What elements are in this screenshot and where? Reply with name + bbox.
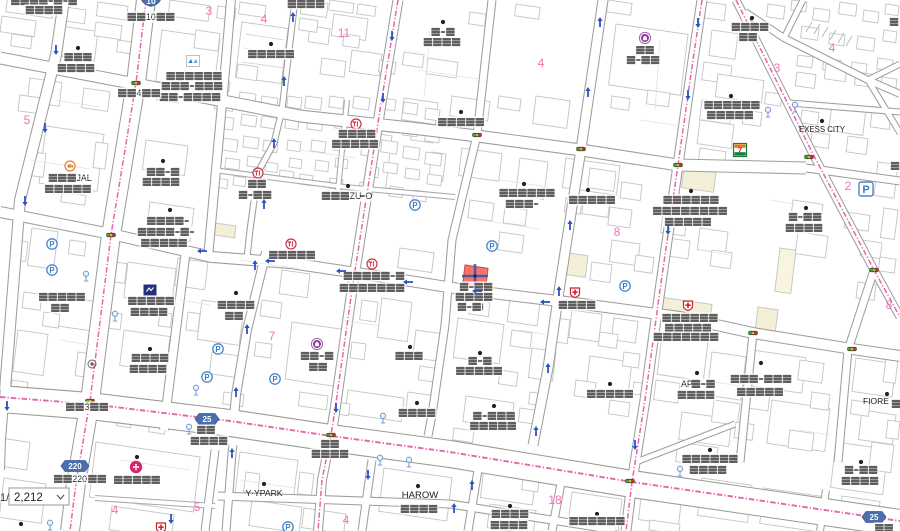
svg-text:P: P xyxy=(215,345,220,354)
svg-text:P: P xyxy=(272,375,277,384)
svg-text:FIORE: FIORE xyxy=(863,396,889,406)
svg-text:3: 3 xyxy=(206,4,213,18)
svg-text:10: 10 xyxy=(146,0,156,6)
svg-text:7: 7 xyxy=(738,146,742,155)
svg-text:P: P xyxy=(49,266,54,275)
svg-text:5: 5 xyxy=(24,113,31,127)
svg-text:HAROW: HAROW xyxy=(402,490,438,501)
svg-text:P: P xyxy=(204,373,209,382)
svg-text:25: 25 xyxy=(870,513,879,522)
svg-text:4: 4 xyxy=(829,41,836,55)
svg-text:Y·YPARK: Y·YPARK xyxy=(245,488,282,498)
svg-text:2,212: 2,212 xyxy=(14,492,43,504)
svg-text:25: 25 xyxy=(203,415,212,424)
svg-text:EXESS CITY: EXESS CITY xyxy=(799,125,846,134)
svg-text:P: P xyxy=(862,184,869,196)
svg-text:P: P xyxy=(622,282,627,291)
svg-text:P: P xyxy=(49,240,54,249)
svg-text:8: 8 xyxy=(614,225,621,239)
svg-text:AP: AP xyxy=(681,379,693,389)
svg-text:4: 4 xyxy=(538,56,545,70)
svg-text:4: 4 xyxy=(112,503,119,517)
svg-text:8: 8 xyxy=(886,298,893,312)
svg-text:5: 5 xyxy=(194,500,201,514)
svg-text:220: 220 xyxy=(68,462,82,471)
svg-text:ZU: ZU xyxy=(350,191,362,201)
svg-text:P: P xyxy=(285,523,290,531)
svg-text:2: 2 xyxy=(845,179,852,193)
svg-text:O: O xyxy=(365,191,372,201)
svg-text:10: 10 xyxy=(146,12,156,22)
svg-text:3: 3 xyxy=(774,61,781,75)
svg-text:220: 220 xyxy=(72,474,87,484)
svg-text:4: 4 xyxy=(137,88,142,98)
svg-text:JAL: JAL xyxy=(77,173,92,183)
svg-text:11: 11 xyxy=(338,26,351,40)
svg-text:3: 3 xyxy=(85,402,90,412)
svg-text:7: 7 xyxy=(269,329,276,343)
svg-text:P: P xyxy=(489,242,494,251)
svg-text:4: 4 xyxy=(343,513,350,527)
svg-text:4: 4 xyxy=(261,12,268,26)
svg-text:18: 18 xyxy=(548,493,562,507)
svg-text:I: I xyxy=(482,302,484,312)
svg-text:P: P xyxy=(412,201,417,210)
